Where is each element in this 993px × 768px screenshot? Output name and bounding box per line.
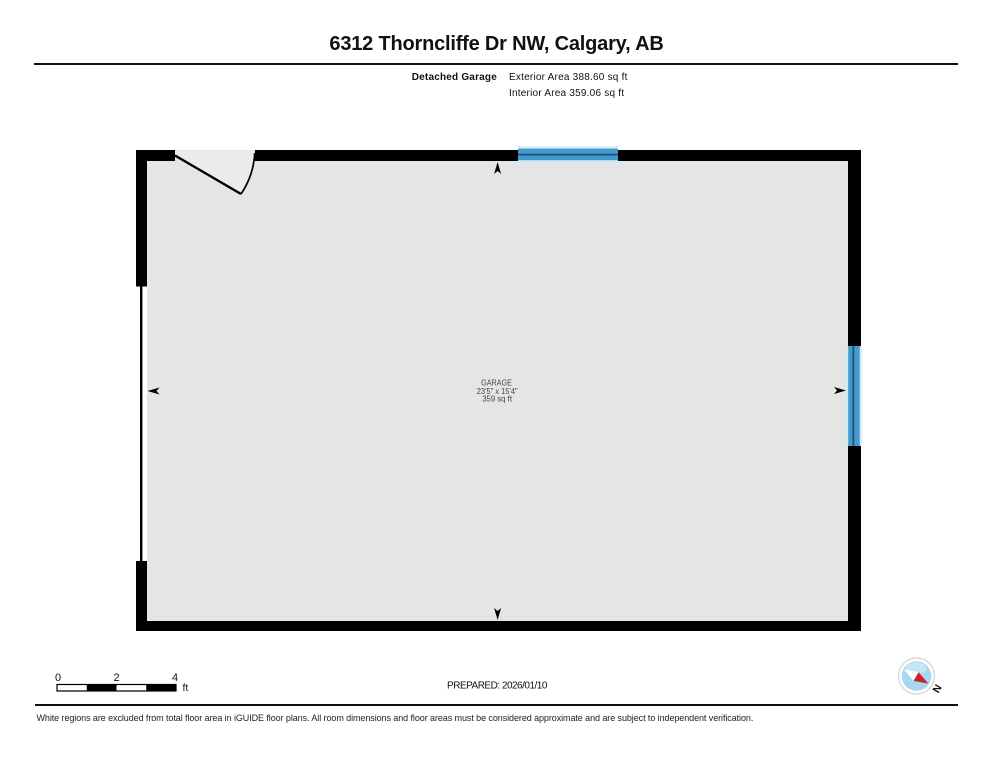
svg-text:0: 0 <box>55 672 61 684</box>
svg-text:2: 2 <box>113 672 119 684</box>
svg-text:4: 4 <box>172 672 178 684</box>
svg-text:ft: ft <box>183 682 189 694</box>
svg-text:PREPARED: 2026/01/10: PREPARED: 2026/01/10 <box>447 681 548 692</box>
svg-text:359 sq ft: 359 sq ft <box>482 395 512 404</box>
